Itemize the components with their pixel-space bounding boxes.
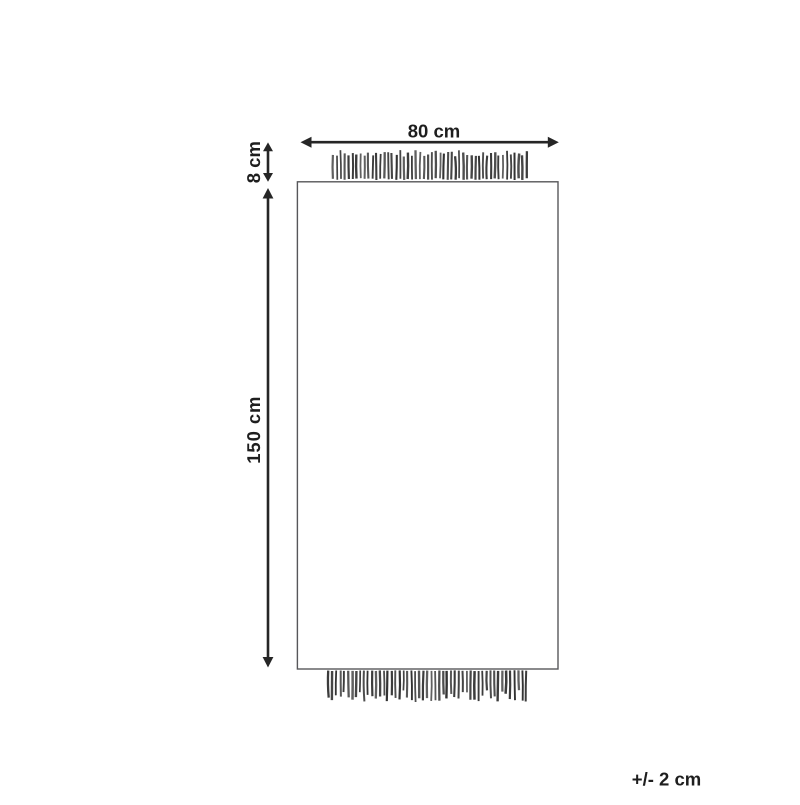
svg-text:150 cm: 150 cm bbox=[243, 396, 264, 464]
svg-text:8 cm: 8 cm bbox=[243, 141, 264, 183]
svg-text:+/- 2 cm: +/- 2 cm bbox=[632, 769, 701, 790]
svg-text:80 cm: 80 cm bbox=[408, 121, 460, 142]
